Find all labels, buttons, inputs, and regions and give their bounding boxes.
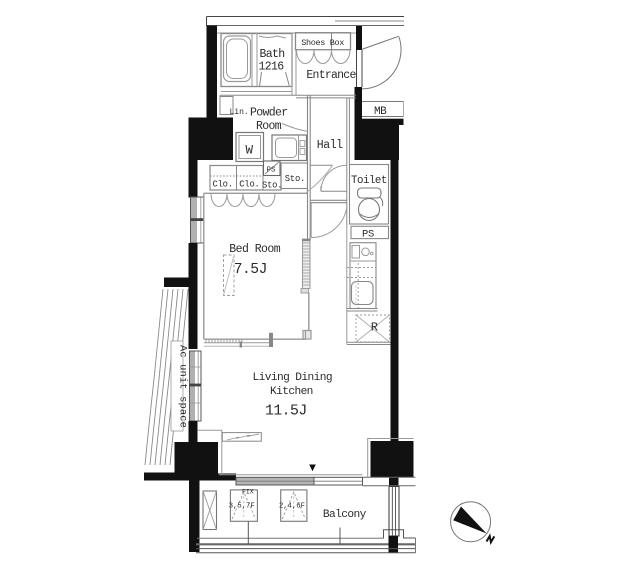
svg-text:Bed Room: Bed Room (229, 243, 280, 256)
svg-text:Clo.: Clo. (239, 180, 259, 190)
svg-text:11.5J: 11.5J (265, 404, 307, 420)
svg-text:Powder: Powder (250, 107, 288, 120)
svg-text:Living Dining: Living Dining (253, 372, 332, 384)
svg-text:PS: PS (267, 167, 277, 175)
svg-text:1216: 1216 (259, 61, 285, 74)
svg-text:3,5,7F: 3,5,7F (229, 503, 255, 511)
svg-text:FIX: FIX (242, 489, 254, 496)
svg-text:Shoes Box: Shoes Box (301, 38, 344, 48)
svg-text:R: R (371, 321, 378, 335)
svg-text:7.5J: 7.5J (234, 262, 267, 278)
svg-text:Toilet: Toilet (351, 175, 387, 187)
svg-text:Kitchen: Kitchen (270, 386, 313, 398)
svg-text:Hall: Hall (317, 139, 343, 152)
svg-text:Ac unit space: Ac unit space (177, 345, 189, 428)
svg-text:W: W (246, 144, 254, 158)
svg-text:2,4,6F: 2,4,6F (279, 503, 305, 511)
svg-text:Sto.: Sto. (262, 181, 282, 191)
svg-text:Bath: Bath (260, 48, 285, 61)
svg-text:PS: PS (362, 229, 374, 241)
svg-text:Lin.: Lin. (230, 108, 249, 117)
svg-text:Clo.: Clo. (213, 180, 233, 190)
svg-text:Balcony: Balcony (323, 509, 367, 521)
svg-text:Sto.: Sto. (285, 174, 305, 184)
svg-text:Room: Room (256, 120, 282, 133)
svg-text:Entrance: Entrance (306, 69, 356, 82)
svg-text:MB: MB (374, 106, 387, 118)
